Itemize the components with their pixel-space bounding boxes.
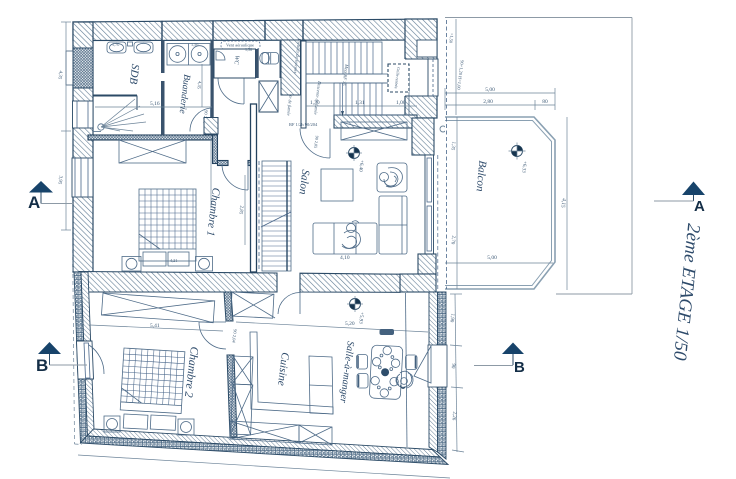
svg-text:2,80: 2,80 <box>483 99 493 105</box>
svg-text:A: A <box>28 193 40 212</box>
svg-text:1,30: 1,30 <box>310 100 320 106</box>
svg-text:B: B <box>514 359 525 376</box>
svg-text:5,00: 5,00 <box>485 87 495 93</box>
svg-text:5,41: 5,41 <box>150 323 160 329</box>
svg-text:4,10: 4,10 <box>340 255 350 261</box>
svg-text:5,00: 5,00 <box>487 255 497 261</box>
svg-text:5,16: 5,16 <box>150 101 160 107</box>
svg-text:1,31: 1,31 <box>355 100 365 106</box>
svg-text:B: B <box>36 356 48 375</box>
svg-text:4,15: 4,15 <box>559 198 566 209</box>
svg-text:5,20: 5,20 <box>345 321 355 327</box>
svg-text:80: 80 <box>542 99 548 105</box>
svg-text:RF 1/2h 90/204: RF 1/2h 90/204 <box>289 122 318 127</box>
svg-text:SDB: SDB <box>127 63 141 85</box>
svg-text:A: A <box>694 198 705 215</box>
svg-text:1,00: 1,00 <box>396 100 406 106</box>
